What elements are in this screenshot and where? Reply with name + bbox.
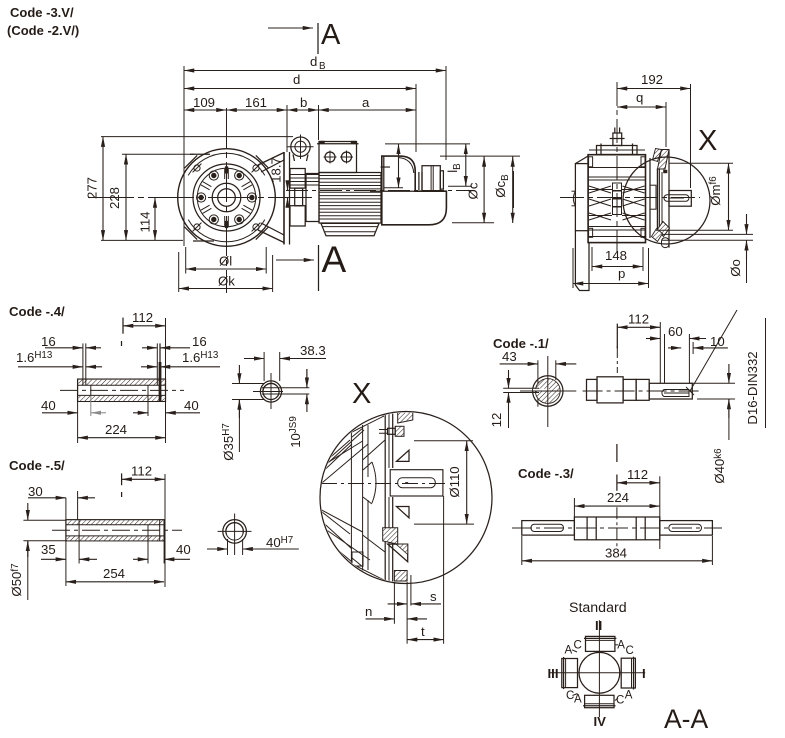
svg-text:Code -.3/: Code -.3/ xyxy=(518,466,574,481)
svg-text:d: d xyxy=(293,72,300,87)
svg-text:X: X xyxy=(352,378,371,410)
svg-text:A-A: A-A xyxy=(664,704,709,734)
svg-text:A: A xyxy=(565,645,573,657)
svg-text:10: 10 xyxy=(710,334,725,349)
svg-text:Ø110: Ø110 xyxy=(447,466,462,497)
svg-text:30: 30 xyxy=(28,484,43,499)
svg-text:p: p xyxy=(618,266,625,281)
svg-text:q: q xyxy=(636,90,643,105)
svg-text:161: 161 xyxy=(245,95,267,110)
svg-text:254: 254 xyxy=(103,566,125,581)
svg-text:16: 16 xyxy=(41,334,56,349)
svg-text:224: 224 xyxy=(105,422,127,437)
svg-text:A: A xyxy=(625,690,633,702)
svg-text:d: d xyxy=(310,54,317,69)
svg-text:D16-DIN332: D16-DIN332 xyxy=(745,351,760,424)
svg-text:112: 112 xyxy=(131,464,152,479)
svg-text:277: 277 xyxy=(85,177,100,199)
svg-text:A: A xyxy=(617,639,625,651)
svg-text:a: a xyxy=(362,95,370,110)
svg-text:Code -3.V/: Code -3.V/ xyxy=(10,5,74,20)
svg-text:18.7: 18.7 xyxy=(269,157,284,183)
svg-text:112: 112 xyxy=(132,310,153,325)
svg-text:148: 148 xyxy=(605,248,627,263)
svg-text:l: l xyxy=(378,165,393,168)
svg-text:Øl: Øl xyxy=(219,254,232,269)
svg-text:109: 109 xyxy=(193,95,215,110)
svg-text:A: A xyxy=(321,19,341,51)
svg-text:C: C xyxy=(574,639,582,651)
svg-text:A: A xyxy=(574,694,582,706)
svg-text:43: 43 xyxy=(502,349,517,364)
svg-text:b: b xyxy=(300,95,307,110)
svg-text:384: 384 xyxy=(605,546,627,561)
svg-text:12: 12 xyxy=(489,413,504,428)
svg-text:224: 224 xyxy=(607,490,629,505)
svg-text:35: 35 xyxy=(41,542,56,557)
svg-text:X: X xyxy=(698,125,717,157)
svg-text:s: s xyxy=(430,589,437,604)
svg-text:38.3: 38.3 xyxy=(300,343,326,358)
svg-text:40: 40 xyxy=(184,398,199,413)
svg-text:60: 60 xyxy=(668,324,683,339)
svg-text:I: I xyxy=(642,666,646,681)
svg-text:192: 192 xyxy=(641,72,663,87)
svg-text:n: n xyxy=(365,604,372,619)
svg-text:112: 112 xyxy=(628,312,649,327)
svg-text:114: 114 xyxy=(138,211,153,232)
svg-text:112: 112 xyxy=(627,467,648,482)
svg-text:B: B xyxy=(319,61,326,72)
svg-text:C: C xyxy=(616,694,624,706)
svg-text:t: t xyxy=(421,624,425,639)
svg-text:Code -.5/: Code -.5/ xyxy=(9,458,65,473)
svg-text:Code -.4/: Code -.4/ xyxy=(9,304,65,319)
svg-text:(Code -2.V/): (Code -2.V/) xyxy=(7,23,79,38)
svg-text:III: III xyxy=(548,666,559,681)
svg-text:16: 16 xyxy=(192,334,207,349)
svg-text:A: A xyxy=(322,239,347,280)
svg-text:C: C xyxy=(626,645,634,657)
svg-text:40: 40 xyxy=(41,398,56,413)
svg-text:II: II xyxy=(595,618,602,633)
svg-text:IV: IV xyxy=(594,714,607,729)
svg-text:40: 40 xyxy=(176,542,191,557)
svg-text:Standard: Standard xyxy=(569,600,627,616)
svg-text:Øc: Øc xyxy=(466,182,481,199)
svg-text:Øo: Øo xyxy=(728,259,743,277)
